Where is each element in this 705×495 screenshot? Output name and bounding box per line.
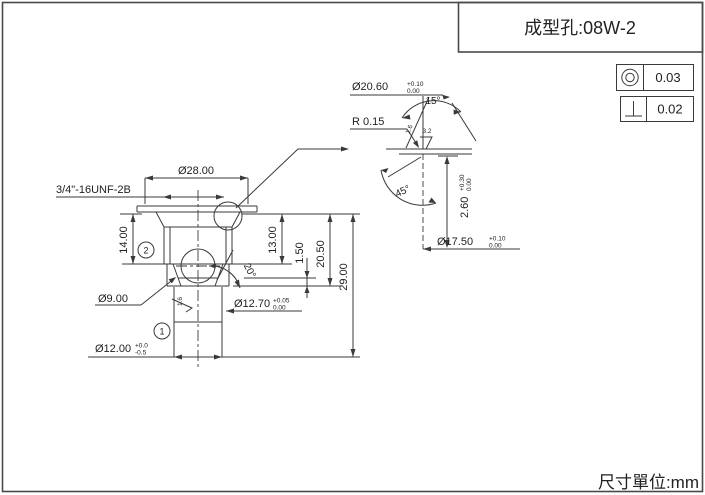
- dim-dia-flange: Ø28.00: [145, 165, 248, 204]
- dim-thread: 3/4"-16UNF-2B: [56, 184, 224, 200]
- thread-label: 3/4"-16UNF-2B: [56, 184, 131, 196]
- balloon-1: 1: [154, 323, 170, 339]
- dim-dia-12-00: Ø12.00 +0.0 -0.5: [88, 343, 360, 360]
- dim-text: R 0.15: [352, 116, 384, 128]
- tol-upper: +0.05: [273, 298, 290, 305]
- tol-lower: 0.00: [407, 88, 420, 95]
- angle-text: 15°: [425, 96, 440, 107]
- drawing-sheet: 成型孔:08W-2 0.03 0.02: [0, 0, 705, 495]
- perpendicularity-value: 0.02: [657, 102, 682, 117]
- tol-lower: 0.00: [273, 305, 286, 312]
- tolerance-frames: 0.03 0.02: [617, 65, 694, 122]
- dim-dia-9: Ø9.00: [95, 277, 176, 305]
- tol-lower: 0.00: [489, 243, 502, 250]
- dim-dia-12-70: Ø12.70 +0.05 0.00: [226, 298, 302, 314]
- dim-height-14: 14.00: [118, 214, 136, 264]
- main-view: 3/4"-16UNF-2B Ø28.00 14.00 13: [56, 147, 360, 369]
- dim-dia-17-50: Ø17.50 +0.10 0.00: [423, 236, 520, 252]
- dim-text: Ø20.60: [352, 81, 388, 93]
- tol-lower: -0.5: [135, 350, 147, 357]
- dim-text: Ø17.50: [437, 236, 473, 248]
- roughness-coarse-value: 3.2: [422, 128, 431, 135]
- drawing-title: 成型孔:08W-2: [524, 18, 636, 38]
- roughness-symbol-stem: 1.6: [172, 297, 192, 312]
- dim-text: 1.50: [294, 242, 306, 263]
- concentricity-icon: [622, 69, 638, 85]
- dim-angle-15: 15°: [402, 96, 461, 120]
- tol-upper: +0.30: [459, 174, 466, 191]
- tol-lower: 0.00: [466, 178, 473, 191]
- dim-text: 20.50: [315, 240, 327, 268]
- dim-height-2-60: 2.60 +0.30 0.00: [438, 156, 473, 248]
- perpendicularity-icon: [625, 101, 642, 116]
- tol-upper: +0.10: [407, 81, 424, 88]
- leader-arrow: [341, 147, 349, 152]
- dim-text: Ø28.00: [178, 165, 214, 177]
- dim-text: 29.00: [338, 263, 350, 291]
- dim-text: Ø9.00: [98, 293, 128, 305]
- dim-text: Ø12.00: [95, 343, 131, 355]
- balloon-2: 2: [138, 242, 154, 258]
- dim-text: Ø12.70: [234, 298, 270, 310]
- dim-text: 2.60: [459, 197, 471, 218]
- dim-text: 14.00: [118, 226, 130, 254]
- units-label: 尺寸單位:mm: [598, 473, 699, 492]
- angle-text: 45°: [394, 184, 412, 200]
- roughness-value: 1.6: [177, 297, 184, 306]
- balloon-number: 1: [159, 327, 164, 337]
- dim-height-29: 29.00: [338, 214, 356, 357]
- dim-text: 13.00: [267, 226, 279, 254]
- balloon-number: 2: [143, 246, 148, 256]
- dim-height-13: 13.00: [267, 214, 285, 264]
- centerlines: [176, 190, 220, 368]
- tol-upper: +0.10: [489, 236, 506, 243]
- dim-angle-45: 45°: [381, 157, 436, 205]
- dim-height-20-50: 20.50: [315, 214, 333, 286]
- title-block: 成型孔:08W-2: [459, 3, 703, 53]
- roughness-symbol-surface: 3.2: [420, 128, 432, 149]
- engineering-drawing: 成型孔:08W-2 0.03 0.02: [0, 0, 705, 495]
- tol-upper: +0.0: [135, 343, 148, 350]
- detail-view: Ø20.60 +0.10 0.00 R 0.15 15° 1.6 3.2: [350, 81, 520, 252]
- concentricity-value: 0.03: [655, 70, 680, 85]
